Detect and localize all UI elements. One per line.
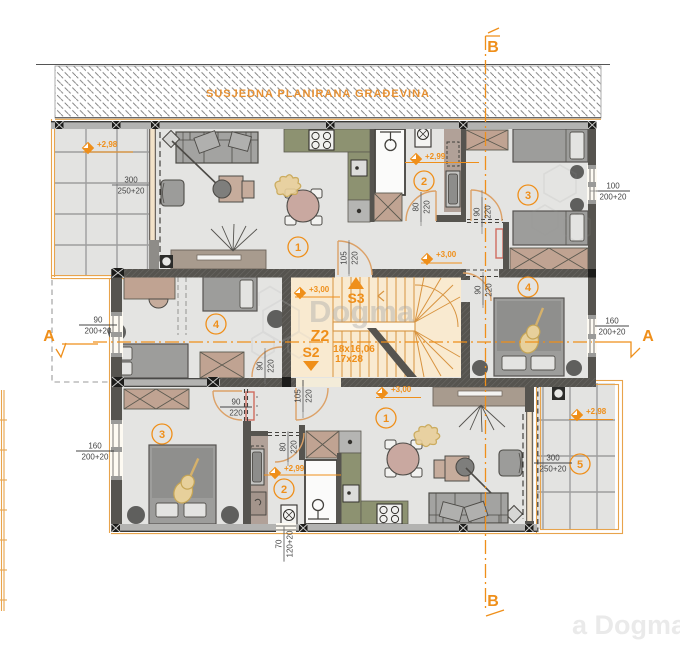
svg-text:1: 1: [295, 242, 301, 254]
svg-text:220: 220: [290, 440, 299, 454]
svg-text:4: 4: [213, 319, 220, 331]
svg-text:220: 220: [423, 200, 432, 214]
svg-text:+3,00: +3,00: [391, 385, 412, 394]
svg-text:80: 80: [279, 442, 288, 451]
svg-text:a Dogma: a Dogma: [572, 610, 680, 640]
svg-text:S2: S2: [302, 344, 319, 360]
svg-text:300: 300: [124, 176, 138, 185]
svg-text:A: A: [642, 328, 654, 345]
svg-text:4: 4: [525, 282, 532, 294]
svg-text:90: 90: [473, 207, 482, 216]
svg-text:+2,99: +2,99: [425, 152, 446, 161]
svg-text:220: 220: [485, 283, 494, 297]
svg-text:160: 160: [605, 317, 619, 326]
svg-text:90: 90: [256, 361, 265, 370]
svg-text:160: 160: [88, 442, 102, 451]
svg-text:+2,98: +2,98: [97, 140, 118, 149]
svg-text:1: 1: [383, 413, 389, 425]
svg-text:S3: S3: [347, 290, 364, 306]
svg-text:100: 100: [606, 182, 620, 191]
svg-text:200+20: 200+20: [82, 453, 109, 462]
svg-text:70: 70: [275, 539, 284, 548]
svg-text:300: 300: [546, 454, 560, 463]
svg-text:B: B: [487, 593, 499, 610]
svg-text:200+20: 200+20: [85, 327, 112, 336]
svg-text:120+20: 120+20: [286, 530, 295, 557]
svg-text:250+20: 250+20: [118, 187, 145, 196]
svg-text:200+20: 200+20: [599, 328, 626, 337]
svg-text:90: 90: [94, 316, 103, 325]
svg-text:B: B: [487, 39, 499, 56]
svg-text:220: 220: [305, 389, 314, 403]
svg-text:220: 220: [267, 359, 276, 373]
svg-text:250+20: 250+20: [540, 465, 567, 474]
svg-text:90: 90: [232, 398, 241, 407]
svg-text:SUSJEDNA PLANIRANA GRAĐEVINA: SUSJEDNA PLANIRANA GRAĐEVINA: [206, 88, 430, 100]
svg-text:+2,98: +2,98: [586, 407, 607, 416]
svg-text:3: 3: [525, 190, 531, 202]
svg-text:5: 5: [577, 459, 583, 471]
svg-text:220: 220: [484, 205, 493, 219]
svg-text:90: 90: [474, 285, 483, 294]
svg-text:2: 2: [281, 484, 287, 496]
svg-text:+2,99: +2,99: [284, 464, 305, 473]
svg-text:2: 2: [421, 176, 427, 188]
svg-text:105: 105: [294, 389, 303, 403]
svg-text:220: 220: [351, 251, 360, 265]
svg-text:17x28: 17x28: [335, 354, 363, 365]
svg-text:220: 220: [229, 409, 243, 418]
svg-text:+3,00: +3,00: [436, 250, 457, 259]
svg-text:80: 80: [412, 202, 421, 211]
svg-text:105: 105: [340, 251, 349, 265]
svg-text:200+20: 200+20: [600, 193, 627, 202]
svg-text:+3,00: +3,00: [309, 285, 330, 294]
svg-text:3: 3: [159, 429, 165, 441]
svg-text:A: A: [43, 328, 55, 345]
